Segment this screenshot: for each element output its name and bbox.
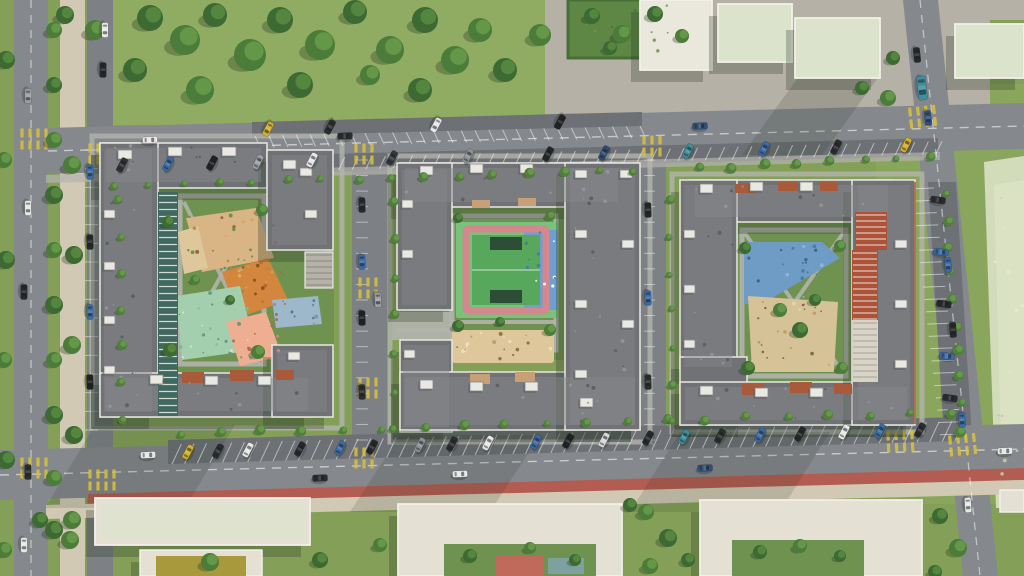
car-windshield [966,506,971,509]
tree-canopy-highlight [51,23,61,33]
car-rear-window [22,540,27,542]
detail-dot [539,231,541,233]
tree-canopy-highlight [3,52,14,63]
detail-dot [725,388,729,392]
roof-unit [755,388,768,397]
car-windshield [88,173,93,176]
detail-dot [229,214,233,218]
tree-canopy-highlight [949,409,955,415]
detail-dot [294,315,296,317]
detail-dot [801,269,805,273]
detail-dot [456,346,458,348]
detail-dot [802,304,804,306]
detail-dot [527,341,530,344]
detail-dot [245,287,247,289]
detail-dot [251,218,254,221]
tree-canopy-highlight [168,344,176,352]
tree-canopy-highlight [778,304,786,312]
detail-dot [269,357,271,359]
detail-dot [710,353,713,356]
detail-dot [254,292,257,295]
crosswalk-dash [362,460,365,469]
tree-canopy-highlight [929,153,935,159]
detail-dot [132,372,134,374]
tree-canopy-highlight [468,550,476,558]
crosswalk-dash [104,482,107,491]
detail-dot [583,198,585,200]
car-roof-highlight [645,380,650,383]
crosswalk-dash [36,470,39,479]
block1-roof-surface-5 [277,350,327,412]
tree-canopy-highlight [869,412,874,417]
detail-dot [499,332,503,336]
detail-dot [603,199,607,203]
detail-dot [790,347,792,349]
detail-dot [220,216,223,219]
detail-dot [804,258,807,261]
tree-canopy-highlight [619,26,630,37]
car-rear-window [340,134,342,139]
tree-canopy-highlight [668,272,672,276]
tree-canopy-highlight [319,176,323,180]
car-rear-window [143,453,145,458]
detail-dot [525,242,528,245]
crosswalk-dash [104,470,107,479]
crosswalk-dash [895,443,899,452]
detail-dot [762,351,765,354]
tree-canopy-highlight [502,420,507,425]
detail-dot [764,307,766,309]
detail-dot [212,250,214,252]
tree-canopy-highlight [960,399,965,404]
car-windshield [360,206,365,209]
car-windshield [22,546,27,549]
detail-dot [209,327,212,330]
tree-canopy-highlight [546,421,550,425]
crosswalk-dash [28,141,31,150]
detail-dot [591,250,594,253]
tree-canopy-highlight [631,169,636,174]
car-roof-highlight [22,544,27,546]
car-roof-highlight [26,471,31,473]
car-windshield [919,90,926,96]
tree-canopy-highlight [275,9,291,25]
tree-canopy-highlight [119,234,124,239]
crosswalk-dash [354,156,357,165]
tree-canopy-highlight [462,421,468,427]
detail-dot [242,290,244,292]
detail-dot [828,364,830,366]
tree-canopy-highlight [958,427,965,434]
crosswalk-dash [36,458,39,467]
detail-dot [270,324,273,327]
car-windshield [346,134,349,139]
car-windshield [376,301,381,304]
tree-canopy-highlight [342,427,347,432]
tree-canopy-highlight [598,167,602,171]
detail-dot [275,318,278,321]
detail-dot [136,394,138,396]
roof-unit [895,360,907,368]
roof-unit [622,320,634,328]
roof-unit [895,240,907,248]
tree-canopy-highlight [680,30,688,38]
detail-dot [1009,371,1011,373]
car-windshield [321,476,324,481]
detail-dot [569,384,572,387]
detail-dot [179,345,183,349]
tree-canopy-highlight [795,160,801,166]
roof-unit [118,150,132,159]
detail-dot [466,342,469,345]
tree-canopy-highlight [51,407,62,418]
detail-dot [197,392,199,394]
detail-dot [1015,309,1019,313]
detail-dot [521,396,524,399]
car-rear-window [646,377,651,379]
detail-dot [266,281,268,283]
detail-dot [1016,449,1019,452]
detail-dot [799,195,803,199]
tree-canopy-highlight [652,7,662,17]
car-roof-highlight [1003,449,1006,454]
car-rear-window [360,387,365,389]
detail-dot [997,414,1000,417]
tree-canopy-highlight [957,371,963,377]
detail-dot [587,201,591,205]
detail-dot [820,263,824,267]
car [22,87,32,104]
tree-canopy-highlight [119,378,124,383]
detail-dot [187,249,189,251]
tree-canopy-highlight [536,26,549,39]
detail-dot [589,196,593,200]
car-roof-highlight [343,134,346,139]
tree-canopy-highlight [885,91,895,101]
detail-dot [105,241,109,245]
detail-dot [198,307,200,309]
tree-canopy-highlight [1,353,11,363]
tree-canopy-highlight [670,306,674,310]
tree-canopy-highlight [3,452,14,463]
roof-unit [420,380,433,389]
crosswalk-dash [370,156,373,165]
roof-unit [525,382,538,391]
detail-dot [575,330,577,332]
tree-canopy-highlight [628,499,636,507]
detail-dot [182,311,184,313]
car-roof-highlight [87,310,92,313]
crosswalk-dash [366,290,369,299]
car-windshield [701,124,704,129]
tree-canopy-highlight [826,411,832,417]
tree-canopy-highlight [260,205,267,212]
car-windshield [149,453,152,458]
detail-dot [535,280,537,282]
crosswalk-dash [20,129,23,138]
roof-unit [580,398,593,407]
tree-canopy-highlight [456,214,462,220]
detail-dot [190,345,192,347]
detail-dot [537,264,541,268]
detail-dot [812,194,815,197]
crosswalk-dash [96,144,99,153]
detail-dot [125,403,129,407]
car-rear-window [700,466,702,471]
detail-dot [1020,304,1024,308]
tree-canopy-highlight [287,176,292,181]
car-windshield [946,266,951,269]
detail-dot [234,161,236,163]
tree-canopy-highlight [358,176,363,181]
court-goal-top [490,237,522,250]
tree-canopy-highlight [180,431,185,436]
detail-dot [814,249,817,252]
detail-dot [813,245,817,249]
roof-unit [222,147,236,156]
crosswalk-dash [354,448,357,457]
detail-dot [230,349,233,352]
detail-dot [795,417,797,419]
car-roof-highlight [26,95,31,97]
detail-dot [537,252,540,255]
tree-canopy-highlight [367,67,379,79]
detail-dot [313,323,315,325]
pergola [276,370,294,380]
tree-canopy-highlight [117,196,122,201]
car-windshield [103,31,108,34]
detail-dot [798,308,800,310]
roof-unit [575,230,587,238]
tree-canopy-highlight [528,543,535,550]
detail-dot [667,32,669,34]
detail-dot [211,303,213,305]
tree-canopy-highlight [424,424,429,429]
detail-dot [606,170,610,174]
detail-dot [202,352,204,354]
tree-canopy-highlight [946,243,952,249]
roof-unit [104,262,115,270]
detail-dot [508,340,511,343]
car-windshield [88,383,93,386]
detail-dot [193,226,197,230]
tree-canopy-highlight [207,554,218,565]
detail-dot [819,203,823,207]
detail-dot [868,401,870,403]
roof-unit [575,370,587,378]
detail-dot [722,362,725,365]
car-windshield [88,243,93,246]
car-roof-highlight [945,263,950,266]
tree-canopy-highlight [860,82,868,90]
detail-dot [1007,270,1010,273]
tree-canopy-highlight [573,555,580,562]
detail-dot [280,271,282,273]
tree-canopy-highlight [787,413,792,418]
tree-canopy-highlight [838,241,845,248]
tree-canopy-highlight [686,554,694,562]
car [18,536,28,553]
detail-dot [528,259,530,261]
tree-canopy-highlight [62,7,73,18]
tree-canopy-highlight [219,428,225,434]
tree-canopy-highlight [864,156,869,161]
car-windshield [1006,449,1009,454]
car [97,61,107,78]
tree-canopy-highlight [145,7,161,23]
tree-canopy-highlight [51,353,61,363]
car-windshield [360,319,365,322]
park-grass [100,0,560,125]
car-windshield [360,263,365,266]
detail-dot [190,146,192,148]
detail-dot [201,325,203,327]
car-windshield [915,56,920,59]
crosswalk-dash [20,141,23,150]
car-roof-highlight [645,296,650,299]
detail-dot [295,391,299,395]
crosswalk-dash [112,470,115,479]
car-rear-window [959,414,964,416]
tree-canopy-highlight [956,345,963,352]
tree-canopy-highlight [458,173,463,178]
crosswalk-dash [362,156,365,165]
tree-canopy-highlight [67,532,78,543]
detail-dot [785,273,789,277]
detail-dot [614,349,617,352]
car-rear-window [145,138,147,143]
crosswalk-dash [887,443,891,452]
detail-dot [553,240,555,242]
car-rear-window [1000,449,1002,454]
tree-canopy-highlight [501,60,515,74]
tree-canopy-highlight [166,217,173,224]
tree-canopy-highlight [933,566,941,574]
car-roof-highlight [914,53,919,56]
tree-canopy-highlight [891,52,899,60]
roof-unit [575,300,587,308]
detail-dot [196,156,198,158]
detail-dot [256,264,260,268]
detail-dot [238,274,241,277]
tree-canopy-highlight [584,419,590,425]
crosswalk-dash [112,482,115,491]
detail-dot [127,168,130,171]
detail-dot [813,406,815,408]
crosswalk-dash [88,482,91,491]
tree-canopy-highlight [195,78,212,95]
roof-unit [800,182,813,191]
crosswalk-dash [354,144,357,153]
detail-dot [581,412,583,414]
car-windshield [646,211,651,214]
tree-canopy-highlight [667,234,671,238]
tree-canopy-highlight [193,276,199,282]
tree-canopy-highlight [498,318,504,324]
tree-canopy-highlight [955,540,966,551]
detail-dot [707,235,709,237]
detail-dot [282,300,284,302]
crosswalk-dash [658,148,661,157]
car-roof-highlight [703,466,706,471]
detail-dot [543,283,546,286]
roof-unit [305,210,317,218]
detail-dot [254,333,256,335]
detail-dot [135,371,137,373]
detail-dot [574,227,576,229]
block2-roof-surface-2 [402,170,447,305]
tree-canopy-highlight [744,412,749,417]
detail-dot [179,313,181,315]
car-roof-highlight [359,316,364,319]
roof-unit [104,210,115,218]
tree-canopy-highlight [315,32,333,50]
car-rear-window [695,124,697,129]
tree-canopy-highlight [665,530,676,541]
detail-dot [820,311,822,313]
detail-dot [890,407,893,410]
detail-dot [242,266,245,269]
south-long-building-roof [102,504,303,539]
car-rear-window [360,257,365,259]
detail-dot [195,250,199,254]
tree-canopy-highlight [380,427,384,431]
tree-canopy-highlight [937,509,947,519]
detail-dot [133,209,135,211]
detail-dot [243,303,245,305]
detail-dot [224,267,227,270]
crosswalk-dash [903,443,907,452]
detail-dot [162,380,165,383]
detail-dot [780,249,782,251]
tree-canopy-highlight [670,418,674,422]
tree-canopy-highlight [763,159,769,165]
kindergarten-hut [496,556,544,576]
detail-dot [232,225,235,228]
tree-canopy-highlight [119,307,124,312]
tree-canopy-highlight [69,337,80,348]
detail-dot [516,348,520,352]
detail-dot [758,341,761,344]
detail-dot [217,338,219,340]
car-windshield [646,299,651,302]
car-rear-window [26,91,31,93]
detail-dot [694,312,696,314]
detail-dot [762,301,764,303]
detail-dot [653,38,656,41]
north-building-2 [718,4,792,62]
tree-canopy-highlight [378,539,386,547]
tree-canopy-highlight [131,60,145,74]
detail-dot [784,387,787,390]
detail-dot [591,386,595,390]
crosswalk-dash [36,129,39,138]
tree-canopy-highlight [746,362,754,370]
pergola [230,370,254,381]
crosswalk-dash [44,458,47,467]
tree-canopy-highlight [393,310,399,316]
detail-dot [695,188,697,190]
pergola [834,384,852,394]
detail-dot [312,304,314,306]
car-windshield [646,383,651,386]
detail-dot [238,403,242,407]
detail-dot [782,263,784,265]
crosswalk-dash [374,278,377,287]
car-rear-window [88,237,93,239]
crosswalk-dash [358,278,361,287]
tree-canopy-highlight [456,321,463,328]
